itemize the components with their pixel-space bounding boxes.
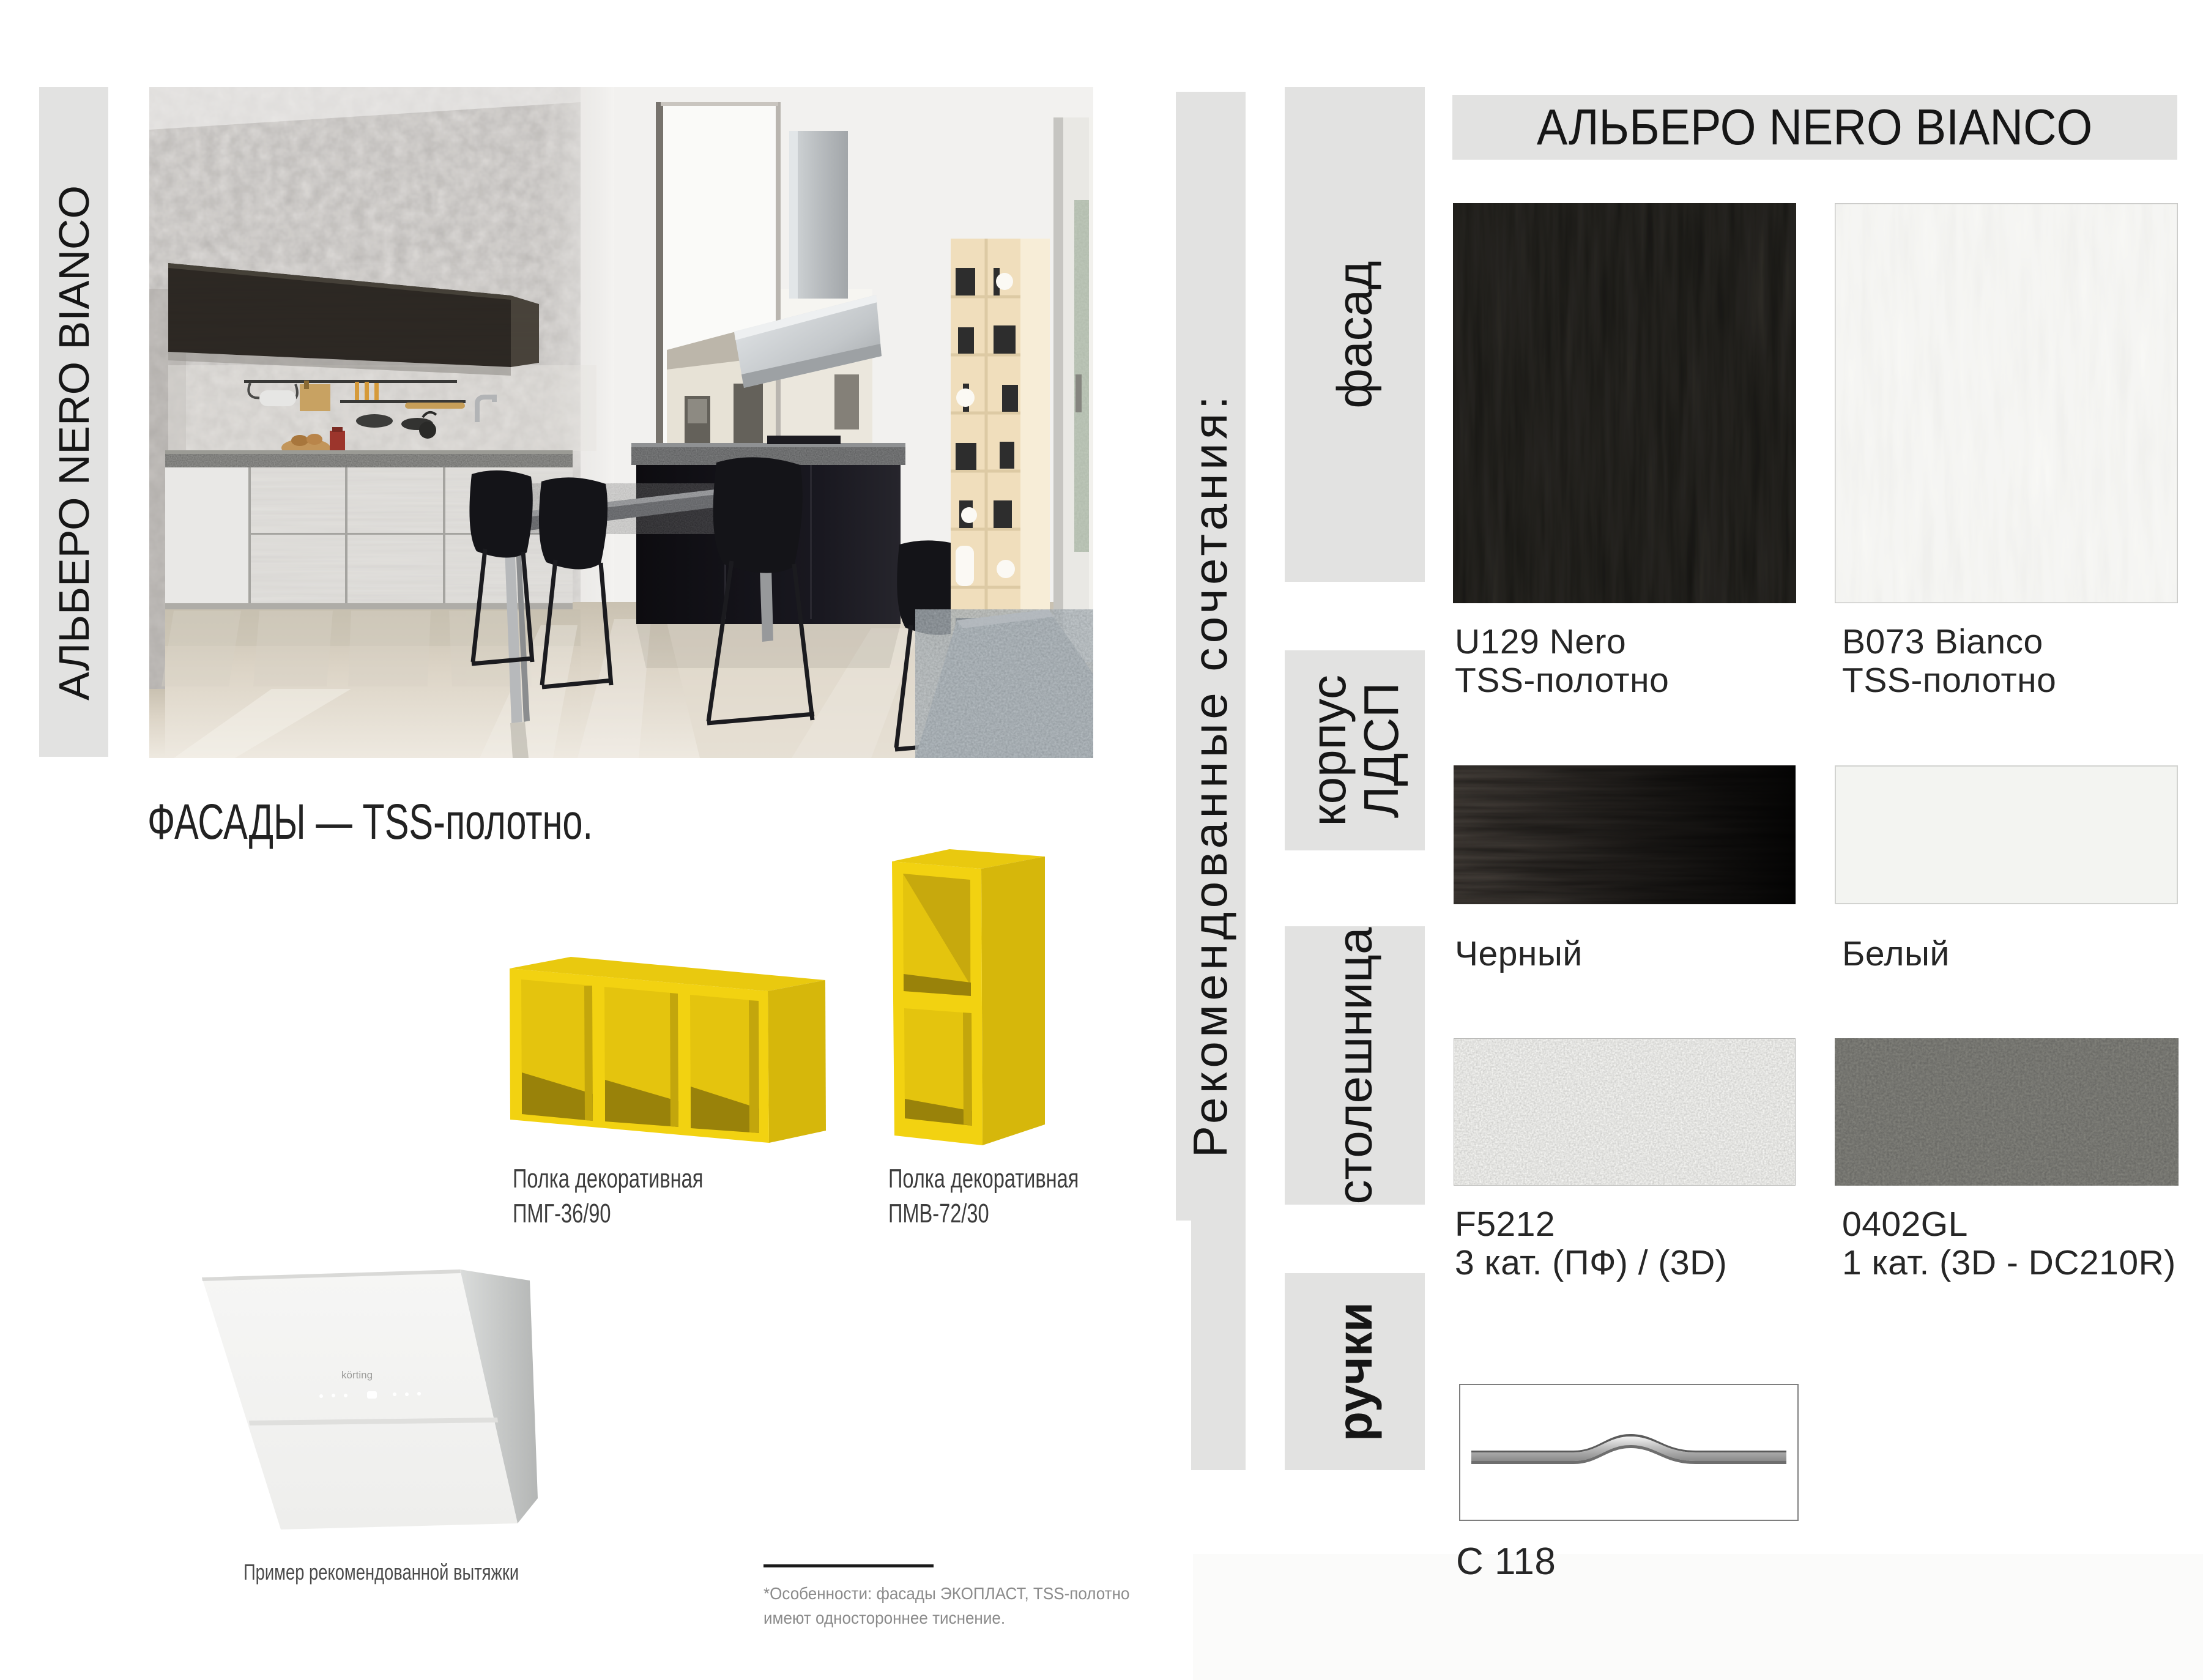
svg-text:körting: körting	[341, 1369, 373, 1381]
